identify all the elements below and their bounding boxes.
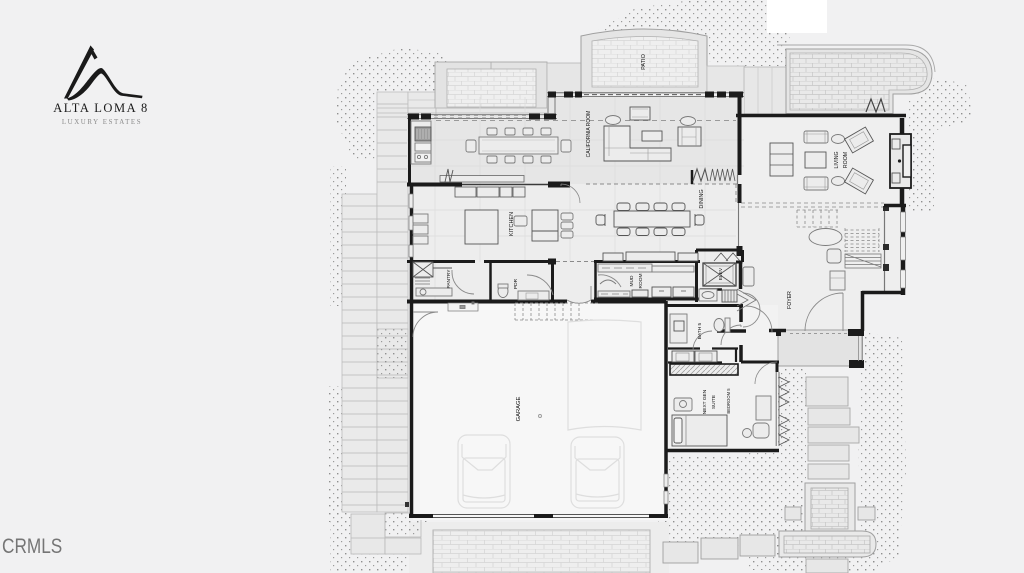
svg-text:CRMLS: CRMLS <box>2 536 62 559</box>
svg-text:ELEV: ELEV <box>718 267 724 280</box>
svg-text:PANTRY: PANTRY <box>446 269 452 289</box>
svg-text:BEDROOM 5: BEDROOM 5 <box>726 388 731 414</box>
svg-text:KITCHEN: KITCHEN <box>509 212 515 236</box>
svg-text:CALIFORNIA ROOM: CALIFORNIA ROOM <box>586 111 592 158</box>
svg-text:SUITE: SUITE <box>711 395 717 409</box>
svg-text:PDR: PDR <box>513 278 519 289</box>
svg-text:LIVING: LIVING <box>834 151 840 168</box>
svg-text:FOYER: FOYER <box>787 291 793 309</box>
svg-text:LUXURY ESTATES: LUXURY ESTATES <box>62 119 142 126</box>
svg-text:DINING: DINING <box>699 189 705 208</box>
svg-text:MUD: MUD <box>629 275 635 286</box>
svg-text:PATIO: PATIO <box>641 53 647 69</box>
svg-text:ALTA LOMA 8: ALTA LOMA 8 <box>53 101 149 115</box>
svg-text:NEXT GEN: NEXT GEN <box>702 389 708 414</box>
svg-text:GARAGE: GARAGE <box>516 396 522 421</box>
svg-text:BATH 5: BATH 5 <box>697 322 703 339</box>
svg-text:ROOM: ROOM <box>843 152 849 168</box>
svg-text:ROOM: ROOM <box>638 274 644 289</box>
